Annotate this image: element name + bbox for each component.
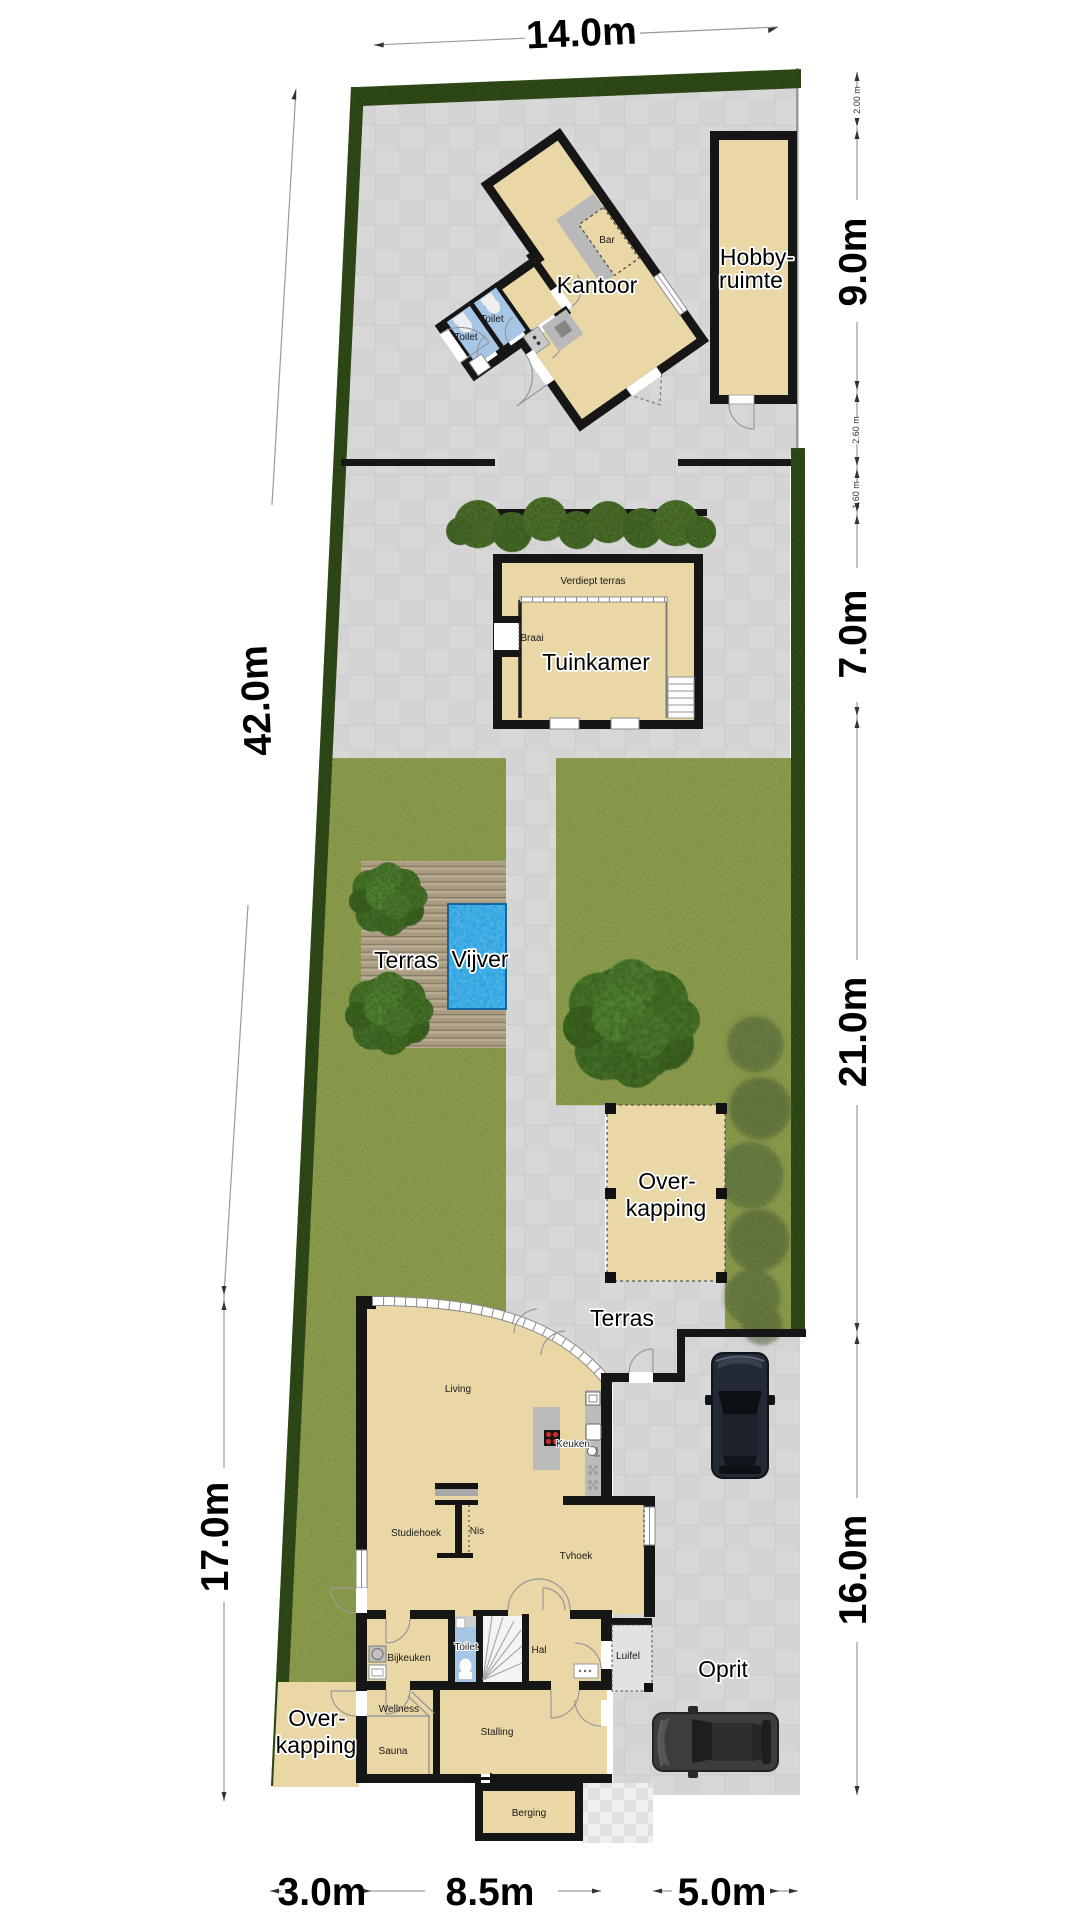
svg-text:Braai: Braai bbox=[520, 633, 543, 644]
svg-text:Berging: Berging bbox=[512, 1808, 546, 1819]
svg-text:9.0m: 9.0m bbox=[832, 218, 875, 307]
svg-text:Over-: Over- bbox=[638, 1168, 696, 1194]
svg-text:Toilet: Toilet bbox=[480, 314, 504, 325]
svg-text:21.0m: 21.0m bbox=[832, 977, 875, 1088]
svg-text:Living: Living bbox=[445, 1384, 471, 1395]
svg-text:Tuinkamer: Tuinkamer bbox=[542, 649, 650, 675]
svg-text:2.60 m: 2.60 m bbox=[851, 416, 861, 444]
svg-text:Hal: Hal bbox=[531, 1645, 546, 1656]
svg-text:1.60 m: 1.60 m bbox=[851, 481, 861, 509]
svg-text:7.0m: 7.0m bbox=[832, 590, 875, 679]
svg-text:Bar: Bar bbox=[599, 235, 615, 246]
svg-text:kapping: kapping bbox=[626, 1195, 707, 1221]
svg-text:Wellness: Wellness bbox=[379, 1704, 419, 1715]
svg-text:Vijver: Vijver bbox=[451, 946, 508, 972]
svg-text:Luifel: Luifel bbox=[616, 1651, 640, 1662]
svg-text:kapping: kapping bbox=[276, 1732, 357, 1758]
svg-text:17.0m: 17.0m bbox=[194, 1482, 237, 1593]
svg-text:14.0m: 14.0m bbox=[525, 10, 637, 58]
svg-text:Verdiept terras: Verdiept terras bbox=[560, 576, 625, 587]
svg-text:Stalling: Stalling bbox=[481, 1727, 514, 1738]
svg-text:Studiehoek: Studiehoek bbox=[391, 1528, 442, 1539]
svg-text:Kantoor: Kantoor bbox=[557, 272, 638, 298]
svg-text:Keuken: Keuken bbox=[556, 1439, 590, 1450]
svg-text:Toilet: Toilet bbox=[454, 1642, 478, 1653]
svg-text:Oprit: Oprit bbox=[698, 1656, 748, 1682]
svg-text:2.00 m: 2.00 m bbox=[852, 86, 862, 114]
svg-text:ruimte: ruimte bbox=[719, 267, 783, 293]
svg-text:Sauna: Sauna bbox=[379, 1746, 408, 1757]
svg-text:Toilet: Toilet bbox=[454, 332, 478, 343]
svg-text:3.0m: 3.0m bbox=[278, 1871, 367, 1914]
svg-text:16.0m: 16.0m bbox=[832, 1515, 875, 1626]
svg-text:Nis: Nis bbox=[470, 1526, 484, 1537]
svg-text:42.0m: 42.0m bbox=[232, 644, 280, 756]
svg-text:Terras: Terras bbox=[374, 947, 438, 973]
svg-text:Terras: Terras bbox=[590, 1305, 654, 1331]
svg-text:Over-: Over- bbox=[288, 1705, 346, 1731]
svg-text:Bijkeuken: Bijkeuken bbox=[387, 1653, 430, 1664]
svg-text:8.5m: 8.5m bbox=[446, 1871, 535, 1914]
svg-text:Tvhoek: Tvhoek bbox=[560, 1551, 594, 1562]
svg-text:5.0m: 5.0m bbox=[678, 1871, 767, 1914]
